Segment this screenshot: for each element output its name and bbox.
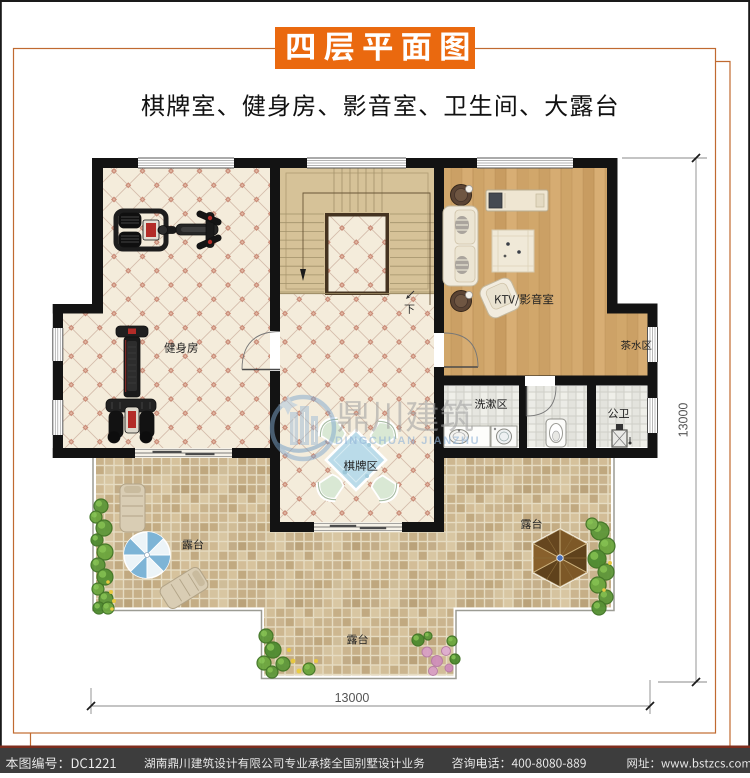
svg-text:13000: 13000 xyxy=(335,691,370,705)
svg-text:DINGCHUAN JIANZHU: DINGCHUAN JIANZHU xyxy=(335,435,480,447)
svg-text:13000: 13000 xyxy=(677,403,691,438)
